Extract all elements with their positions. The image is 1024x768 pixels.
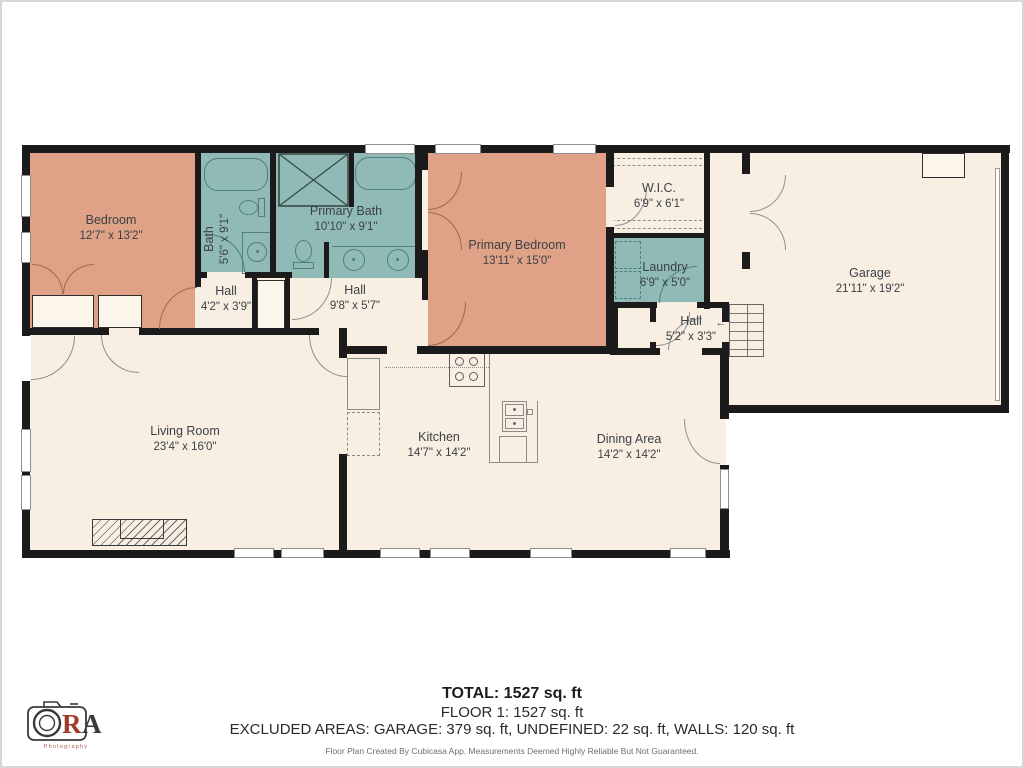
wall-segment <box>704 153 710 309</box>
window <box>281 548 324 558</box>
sink-drain-icon <box>396 258 399 261</box>
garage-storage-box <box>922 153 965 178</box>
room-dims: 14'7" x 14'2" <box>407 446 470 460</box>
island-cabinet-icon <box>499 436 527 463</box>
room-dims: 10'10" x 9'1" <box>310 220 382 234</box>
room-name: Living Room <box>150 424 219 440</box>
door-opening <box>742 174 750 252</box>
room-dims: 21'11" x 19'2" <box>836 282 905 296</box>
window <box>553 144 596 154</box>
wall-segment <box>417 346 614 354</box>
wall-segment <box>139 328 319 335</box>
burner-icon <box>469 357 478 366</box>
room-dims: 14'2" x 14'2" <box>597 448 662 462</box>
toilet-tank-icon <box>258 198 265 217</box>
room-dims: 12'7" x 13'2" <box>79 229 142 243</box>
window <box>670 548 706 558</box>
room-name: Dining Area <box>597 432 662 448</box>
window <box>380 548 420 558</box>
burner-icon <box>469 372 478 381</box>
room-label-garage: Garage 21'11" x 19'2" <box>836 266 905 296</box>
sink-drain-icon <box>256 250 259 253</box>
burner-icon <box>455 372 464 381</box>
room-dims: 4'2" x 3'9" <box>201 300 251 314</box>
camera-lens-o-icon <box>34 710 60 736</box>
window <box>21 475 31 510</box>
room-name: W.I.C. <box>634 181 684 197</box>
room-label-bedroom: Bedroom 12'7" x 13'2" <box>79 213 142 243</box>
room-label-wic: W.I.C. 6'9" x 6'1" <box>634 181 684 211</box>
window <box>430 548 470 558</box>
faucet-icon <box>527 409 533 415</box>
room-name: Primary Bedroom <box>468 238 565 254</box>
closet-box <box>98 295 142 328</box>
room-name: Bedroom <box>79 213 142 229</box>
room-label-hall-c: Hall 5'2" x 3'3" <box>666 314 716 344</box>
room-name: Hall <box>330 283 380 299</box>
bathtub-icon <box>355 157 416 190</box>
window <box>234 548 274 558</box>
window <box>21 232 31 263</box>
sink-drain-icon <box>513 408 516 411</box>
wall-segment <box>1001 145 1009 413</box>
toilet-icon <box>295 240 312 262</box>
excluded-areas-text: EXCLUDED AREAS: GARAGE: 379 sq. ft, UNDE… <box>2 721 1022 738</box>
room-name: Bath <box>202 214 218 264</box>
wall-segment <box>702 348 729 355</box>
closet-box <box>32 295 94 328</box>
toilet-tank-icon <box>293 262 314 269</box>
wall-segment <box>415 153 422 278</box>
stairs-icon <box>729 304 764 357</box>
wall-segment <box>285 278 290 335</box>
counter-cabinet-icon <box>347 412 380 456</box>
logo-subtitle: Photography <box>44 744 88 750</box>
room-label-kitchen: Kitchen 14'7" x 14'2" <box>407 430 470 460</box>
counter-cabinet-icon <box>347 358 380 410</box>
sink-drain-icon <box>352 258 355 261</box>
room-dims: 6'9" x 5'0" <box>640 276 690 290</box>
stove-icon <box>449 353 485 387</box>
burner-icon <box>455 357 464 366</box>
room-name: Primary Bath <box>310 204 382 220</box>
room-name: Laundry <box>640 260 690 276</box>
room-name: Hall <box>666 314 716 330</box>
wall-segment <box>606 153 614 187</box>
room-dims: 23'4" x 16'0" <box>150 440 219 454</box>
wall-segment <box>720 509 729 558</box>
wall-segment <box>22 145 1010 153</box>
wall-segment <box>22 550 730 558</box>
wall-segment <box>195 272 207 278</box>
window <box>530 548 572 558</box>
stairs-direction-arrow-icon: ← <box>710 317 732 329</box>
counter-edge <box>489 353 490 463</box>
room-label-primary-bath: Primary Bath 10'10" x 9'1" <box>310 204 382 234</box>
room-dims: 13'11" x 15'0" <box>468 254 565 268</box>
wall-segment <box>422 346 428 354</box>
room-label-bath: Bath 5'6" x 9'1" <box>202 214 232 264</box>
room-dims: 5'2" x 3'3" <box>666 330 716 344</box>
room-name: Hall <box>201 284 251 300</box>
closet-shelf-line <box>612 158 702 159</box>
room-dims: 9'8" x 5'7" <box>330 299 380 313</box>
room-dims: 5'6" x 9'1" <box>218 214 232 264</box>
window <box>720 469 729 509</box>
room-label-hall-b: Hall 9'8" x 5'7" <box>330 283 380 313</box>
wall-segment <box>195 153 201 287</box>
room-name: Garage <box>836 266 905 282</box>
shower-icon <box>278 153 349 207</box>
garage-door-panel <box>995 168 1000 401</box>
total-area-text: TOTAL: 1527 sq. ft <box>2 685 1022 703</box>
closet-shelf-line <box>612 228 702 229</box>
wall-segment <box>422 153 428 170</box>
wall-segment <box>22 328 109 335</box>
room-label-living-room: Living Room 23'4" x 16'0" <box>150 424 219 454</box>
wall-segment <box>349 153 354 207</box>
bathtub-icon <box>204 158 268 191</box>
wall-segment <box>606 233 710 238</box>
washer-icon <box>615 241 641 269</box>
counter-edge <box>537 401 538 463</box>
floor-area-text: FLOOR 1: 1527 sq. ft <box>2 704 1022 721</box>
room-dims: 6'9" x 6'1" <box>634 197 684 211</box>
window <box>435 144 481 154</box>
window <box>365 144 415 154</box>
room-label-hall-a: Hall 4'2" x 3'9" <box>201 284 251 314</box>
door-opening <box>21 336 31 381</box>
stairs-midline <box>747 305 748 356</box>
wall-segment <box>720 405 1009 413</box>
door-opening <box>606 187 614 227</box>
dryer-icon <box>615 271 641 299</box>
wall-segment <box>270 153 276 278</box>
room-label-primary-bedroom: Primary Bedroom 13'11" x 15'0" <box>468 238 565 268</box>
room-label-laundry: Laundry 6'9" x 5'0" <box>640 260 690 290</box>
logo-letter-r: R <box>62 709 82 739</box>
closet-shelf-line <box>612 165 702 166</box>
wall-segment <box>422 250 428 300</box>
closet-box <box>257 280 285 330</box>
wall-segment <box>252 278 257 335</box>
fireplace-inner <box>120 519 164 539</box>
window <box>21 175 31 217</box>
ora-photography-logo: R A Photography <box>22 690 112 754</box>
window <box>21 429 31 472</box>
wall-segment <box>742 145 750 174</box>
floorplan-page: ← <box>0 0 1024 768</box>
sink-drain-icon <box>513 422 516 425</box>
wall-segment <box>742 252 750 269</box>
vanity-counter-line <box>332 246 416 247</box>
room-name: Kitchen <box>407 430 470 446</box>
wall-segment <box>339 454 347 550</box>
disclaimer-text: Floor Plan Created By Cubicasa App. Meas… <box>2 746 1022 756</box>
toilet-icon <box>239 200 258 215</box>
wall-segment <box>324 242 329 278</box>
wall-segment <box>610 348 660 355</box>
room-label-dining: Dining Area 14'2" x 14'2" <box>597 432 662 462</box>
logo-letter-a: A <box>82 709 102 739</box>
